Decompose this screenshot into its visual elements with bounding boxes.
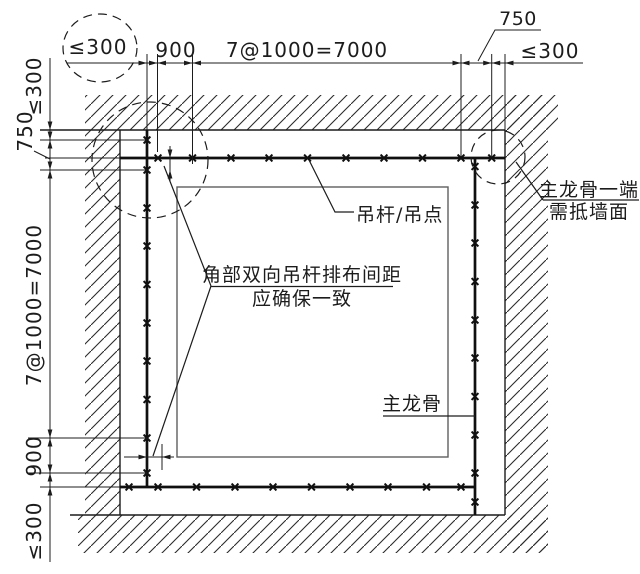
label-keel-end-line1: 主龙骨一端 [539, 179, 639, 201]
dim-label-top-end-gap: ≤300 [521, 39, 580, 63]
dim-label-top-750: 750 [499, 8, 537, 30]
dim-label-left-run: 7@1000=7000 [22, 224, 46, 386]
dim-label-left-end-gap: ≤300 [22, 502, 46, 561]
dim-label-left-900: 900 [22, 435, 46, 476]
drawing-canvas: ≤300 900 7@1000=7000 750 ≤300 ≤300 750 7… [0, 0, 640, 574]
leader-corner-note-down [153, 286, 211, 456]
annotation-main-keel: 主龙骨 [382, 393, 475, 416]
label-hanger-point: 吊杆/吊点 [356, 204, 443, 226]
dim-label-top-run: 7@1000=7000 [226, 38, 388, 62]
ceiling-hanger-layout-drawing: ≤300 900 7@1000=7000 750 ≤300 ≤300 750 7… [0, 0, 640, 574]
dim-label-top-900: 900 [155, 38, 196, 62]
dim-label-top-wall-gap: ≤300 [69, 35, 128, 59]
wall-hatch-right [505, 95, 548, 552]
dim-leader-750-left [34, 151, 50, 159]
label-corner-note-line1: 角部双向吊杆排布间距 [202, 264, 402, 286]
label-corner-note-line2: 应确保一致 [252, 288, 352, 310]
label-keel-end-line2: 需抵墙面 [549, 201, 629, 223]
annotation-hanger-point: 吊杆/吊点 [309, 160, 443, 226]
dim-label-left-750: 750 [13, 110, 37, 151]
label-main-keel: 主龙骨 [382, 393, 442, 415]
wall-hatch [78, 95, 558, 553]
dim-label-left-wall-gap: ≤300 [22, 57, 46, 116]
wall-hatch-top [85, 95, 558, 130]
corner-spacing-dim-bottom [124, 444, 174, 470]
wall-hatch-left [85, 130, 120, 515]
leader-hanger-point [309, 160, 354, 212]
wall-hatch-bottom [78, 515, 548, 553]
